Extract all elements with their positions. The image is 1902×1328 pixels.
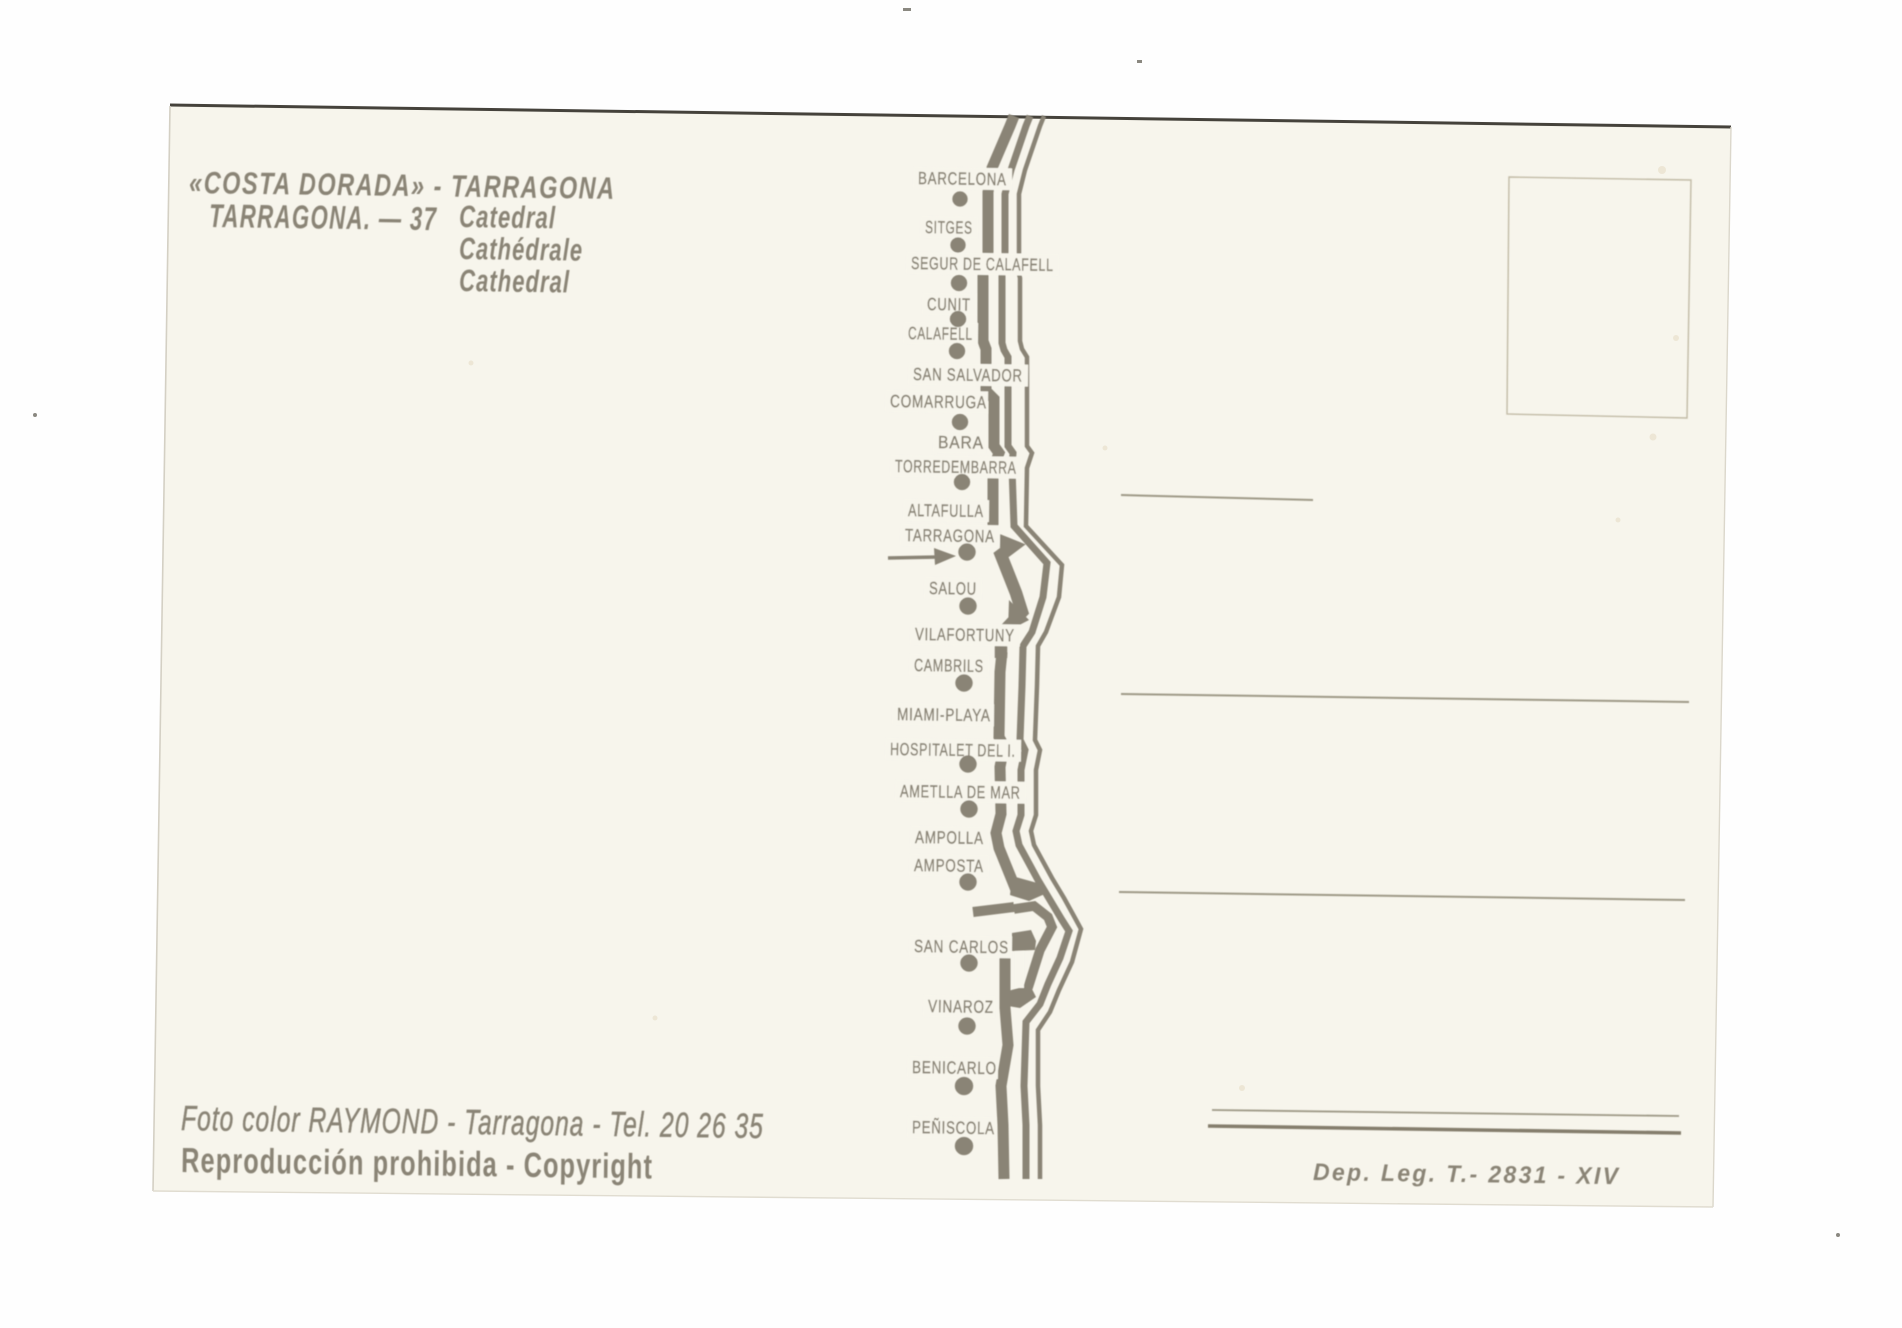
- svg-text:Dep. Leg. T.- 2831 - XIV: Dep. Leg. T.- 2831 - XIV: [1313, 1159, 1621, 1190]
- svg-text:CAMBRILS: CAMBRILS: [914, 656, 984, 677]
- svg-text:AMETLLA DE MAR: AMETLLA DE MAR: [900, 782, 1021, 803]
- svg-text:Reproducción prohibida - Copyr: Reproducción prohibida - Copyright: [181, 1141, 653, 1186]
- svg-text:ALTAFULLA: ALTAFULLA: [908, 501, 984, 522]
- svg-text:BENICARLO: BENICARLO: [912, 1058, 997, 1078]
- svg-text:MIAMI-PLAYA: MIAMI-PLAYA: [897, 705, 991, 725]
- svg-text:BARA: BARA: [938, 432, 984, 453]
- svg-text:Cathédrale: Cathédrale: [459, 231, 583, 267]
- svg-text:SAN SALVADOR: SAN SALVADOR: [913, 365, 1023, 386]
- svg-text:Cathedral: Cathedral: [459, 263, 570, 299]
- svg-text:VILAFORTUNY: VILAFORTUNY: [915, 625, 1015, 646]
- svg-text:AMPOSTA: AMPOSTA: [914, 856, 984, 876]
- svg-text:TARRAGONA. — 37: TARRAGONA. — 37: [209, 198, 438, 238]
- svg-text:CUNIT: CUNIT: [927, 295, 971, 315]
- svg-text:HOSPITALET DEL I.: HOSPITALET DEL I.: [890, 740, 1016, 761]
- svg-text:SITGES: SITGES: [925, 218, 973, 239]
- svg-text:SEGUR DE CALAFELL: SEGUR DE CALAFELL: [911, 254, 1054, 276]
- svg-text:Foto color RAYMOND - Tarragona: Foto color RAYMOND - Tarragona - Tel. 20…: [181, 1100, 764, 1146]
- svg-text:TORREDEMBARRA: TORREDEMBARRA: [895, 457, 1017, 478]
- svg-text:SAN CARLOS: SAN CARLOS: [914, 937, 1009, 957]
- svg-text:AMPOLLA: AMPOLLA: [915, 828, 984, 848]
- svg-text:Catedral: Catedral: [459, 199, 556, 235]
- svg-text:COMARRUGA: COMARRUGA: [890, 392, 987, 412]
- svg-text:CALAFELL: CALAFELL: [908, 324, 973, 345]
- svg-text:VINAROZ: VINAROZ: [928, 997, 994, 1017]
- svg-text:PEÑISCOLA: PEÑISCOLA: [912, 1118, 995, 1138]
- svg-text:TARRAGONA: TARRAGONA: [905, 526, 995, 546]
- svg-text:BARCELONA: BARCELONA: [918, 169, 1007, 189]
- svg-text:SALOU: SALOU: [929, 579, 977, 599]
